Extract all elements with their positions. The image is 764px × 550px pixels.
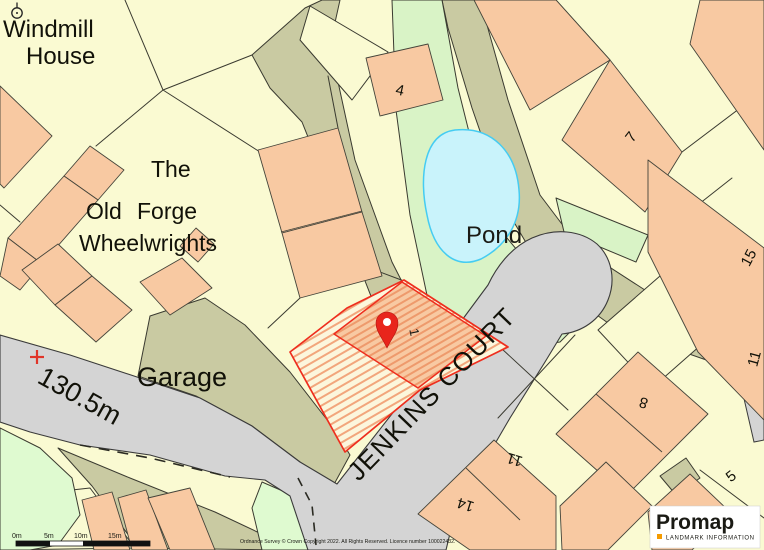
pin-center-dot	[383, 318, 391, 326]
map-canvas[interactable]: Windmill House The Old Forge Wheelwright…	[0, 0, 764, 550]
label-pond: Pond	[466, 222, 522, 249]
label-garage: Garage	[137, 362, 227, 392]
landmark-square-icon	[657, 534, 662, 539]
copyright-text: Ordnance Survey © Crown Copyright 2022. …	[240, 538, 455, 545]
label-the: The	[151, 156, 191, 182]
label-old: Old	[86, 198, 122, 224]
scale-tick-0m: 0m	[12, 533, 22, 540]
landmark-tagline: LANDMARK INFORMATION	[666, 536, 755, 542]
scale-tick-10m: 10m	[74, 533, 88, 540]
label-wheelwrights: Wheelwrights	[79, 230, 217, 256]
label-windmill: Windmill	[3, 16, 94, 43]
scale-tick-5m: 5m	[44, 533, 54, 540]
map-viewport[interactable]: Windmill House The Old Forge Wheelwright…	[0, 0, 764, 550]
label-forge: Forge	[137, 198, 197, 224]
promap-logo: Promap LANDMARK INFORMATION	[650, 506, 760, 548]
promap-logo-text: Promap	[656, 511, 734, 534]
label-house: House	[26, 43, 95, 70]
scale-tick-15m: 15m	[108, 533, 122, 540]
